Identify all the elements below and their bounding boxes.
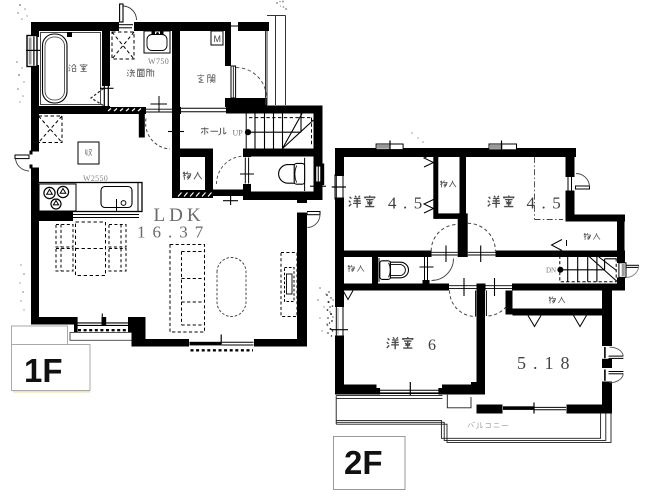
svg-text:6: 6 <box>428 337 436 354</box>
svg-text:1F: 1F <box>24 352 63 389</box>
svg-text:W2550: W2550 <box>83 174 108 183</box>
svg-text:16.37: 16.37 <box>137 223 210 242</box>
svg-text:4.5: 4.5 <box>527 194 568 213</box>
svg-text:W750: W750 <box>148 57 169 66</box>
svg-text:4.5: 4.5 <box>388 194 429 213</box>
svg-text:5.18: 5.18 <box>517 353 577 373</box>
svg-text:2F: 2F <box>344 444 383 481</box>
svg-text:UP: UP <box>233 129 244 138</box>
svg-text:M: M <box>214 34 222 44</box>
svg-text:DN: DN <box>546 267 556 275</box>
